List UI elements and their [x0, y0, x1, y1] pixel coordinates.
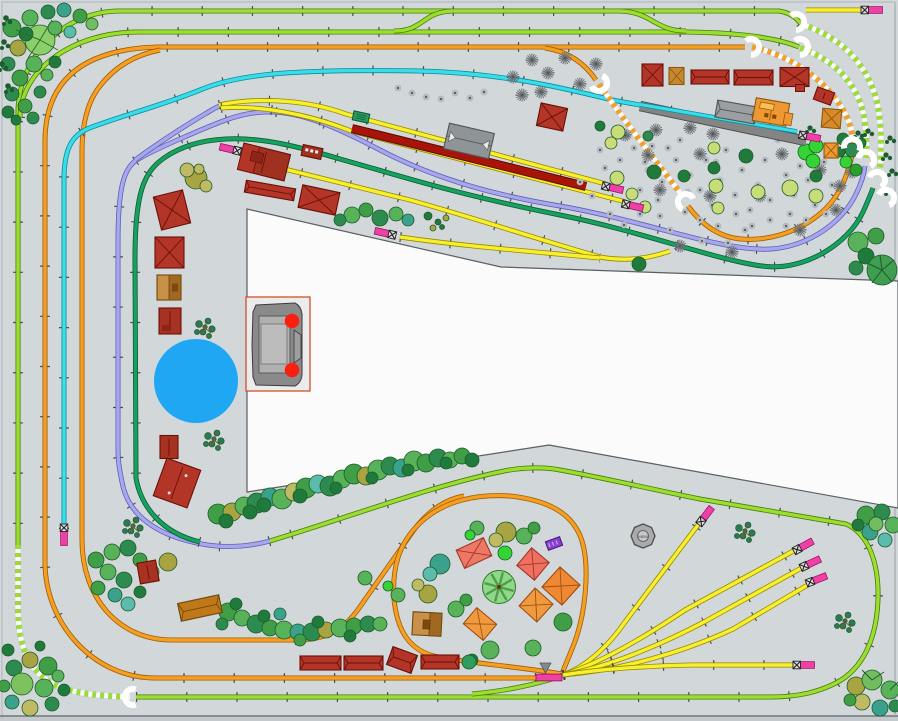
svg-text:MEM: MEM	[638, 534, 647, 539]
